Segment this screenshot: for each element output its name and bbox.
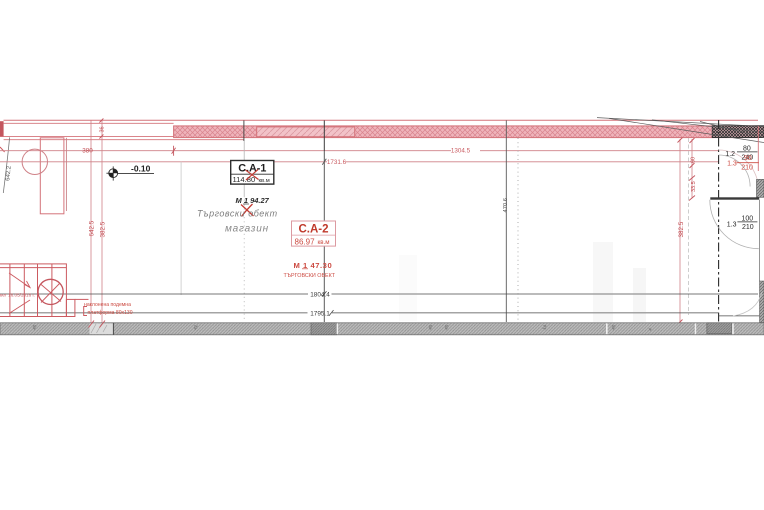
svg-text:вет 16.05/2016 г.: вет 16.05/2016 г. (0, 292, 35, 297)
svg-text:наклонена подемна: наклонена подемна (84, 302, 131, 308)
svg-text:33.5: 33.5 (691, 181, 697, 192)
svg-text:1731.6: 1731.6 (327, 159, 347, 166)
svg-text:1304.5: 1304.5 (451, 147, 471, 154)
svg-text:М 1 94.27: М 1 94.27 (236, 196, 270, 205)
svg-text:-0.10: -0.10 (131, 163, 151, 173)
svg-text:382.5: 382.5 (100, 221, 107, 237)
svg-text:М 1 47.30: М 1 47.30 (294, 261, 333, 270)
svg-text:642.2: 642.2 (5, 165, 13, 181)
svg-text:кв.м: кв.м (259, 178, 270, 184)
svg-text:платформа 80х130: платформа 80х130 (88, 310, 133, 316)
svg-text:кв.м: кв.м (318, 239, 330, 246)
svg-text:60: 60 (691, 157, 697, 163)
svg-text:210: 210 (742, 224, 754, 231)
svg-text:114.80: 114.80 (233, 175, 256, 184)
svg-text:С.А-1: С.А-1 (238, 163, 266, 175)
svg-text:Търговски обект: Търговски обект (197, 209, 278, 219)
svg-text:1804.4: 1804.4 (310, 292, 330, 299)
svg-text:382.5: 382.5 (678, 221, 685, 237)
svg-text:магазин: магазин (225, 224, 269, 235)
svg-text:86.97: 86.97 (295, 237, 316, 246)
svg-text:36: 36 (99, 126, 105, 132)
svg-text:90: 90 (744, 155, 752, 162)
svg-text:С.А-2: С.А-2 (298, 223, 328, 235)
svg-text:210: 210 (741, 164, 753, 171)
svg-text:1795.1: 1795.1 (310, 311, 330, 318)
svg-text:380: 380 (82, 148, 93, 155)
svg-text:ТЪРГОВСКИ ОБЕКТ: ТЪРГОВСКИ ОБЕКТ (284, 273, 336, 279)
svg-text:1.3: 1.3 (727, 222, 737, 229)
svg-text:642.5: 642.5 (89, 220, 96, 236)
svg-text:1.2: 1.2 (725, 151, 735, 158)
svg-text:1.3: 1.3 (727, 161, 737, 168)
svg-text:470.6: 470.6 (503, 198, 509, 213)
